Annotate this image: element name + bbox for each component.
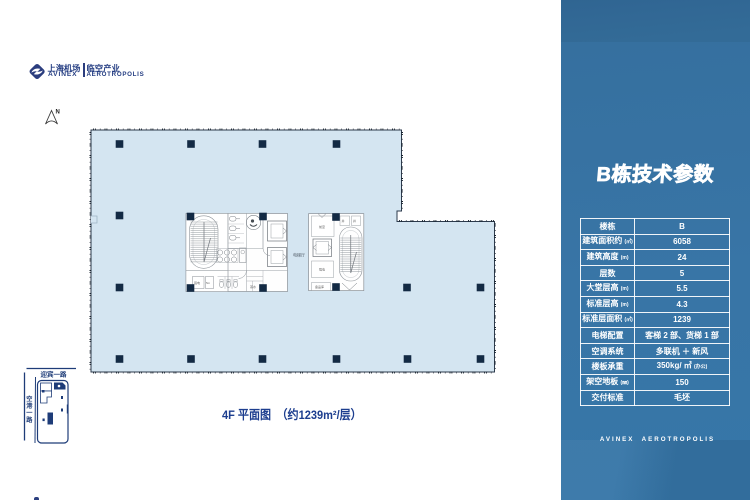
- svg-text:强电: 强电: [319, 267, 325, 272]
- svg-text:一: 一: [26, 410, 33, 417]
- svg-text:强电: 强电: [194, 280, 200, 285]
- svg-text:电梯厅: 电梯厅: [293, 252, 305, 258]
- svg-text:前室: 前室: [319, 224, 325, 229]
- svg-text:井: 井: [342, 218, 345, 223]
- svg-text:空: 空: [26, 395, 32, 403]
- svg-text:茶水: 茶水: [250, 284, 256, 289]
- svg-text:5m: 5m: [206, 281, 211, 285]
- svg-text:迎宾一路: 迎宾一路: [41, 370, 68, 379]
- svg-text:井: 井: [353, 218, 356, 223]
- svg-text:港: 港: [26, 402, 33, 410]
- svg-text:路: 路: [26, 416, 33, 424]
- svg-text:备品库: 备品库: [315, 284, 324, 289]
